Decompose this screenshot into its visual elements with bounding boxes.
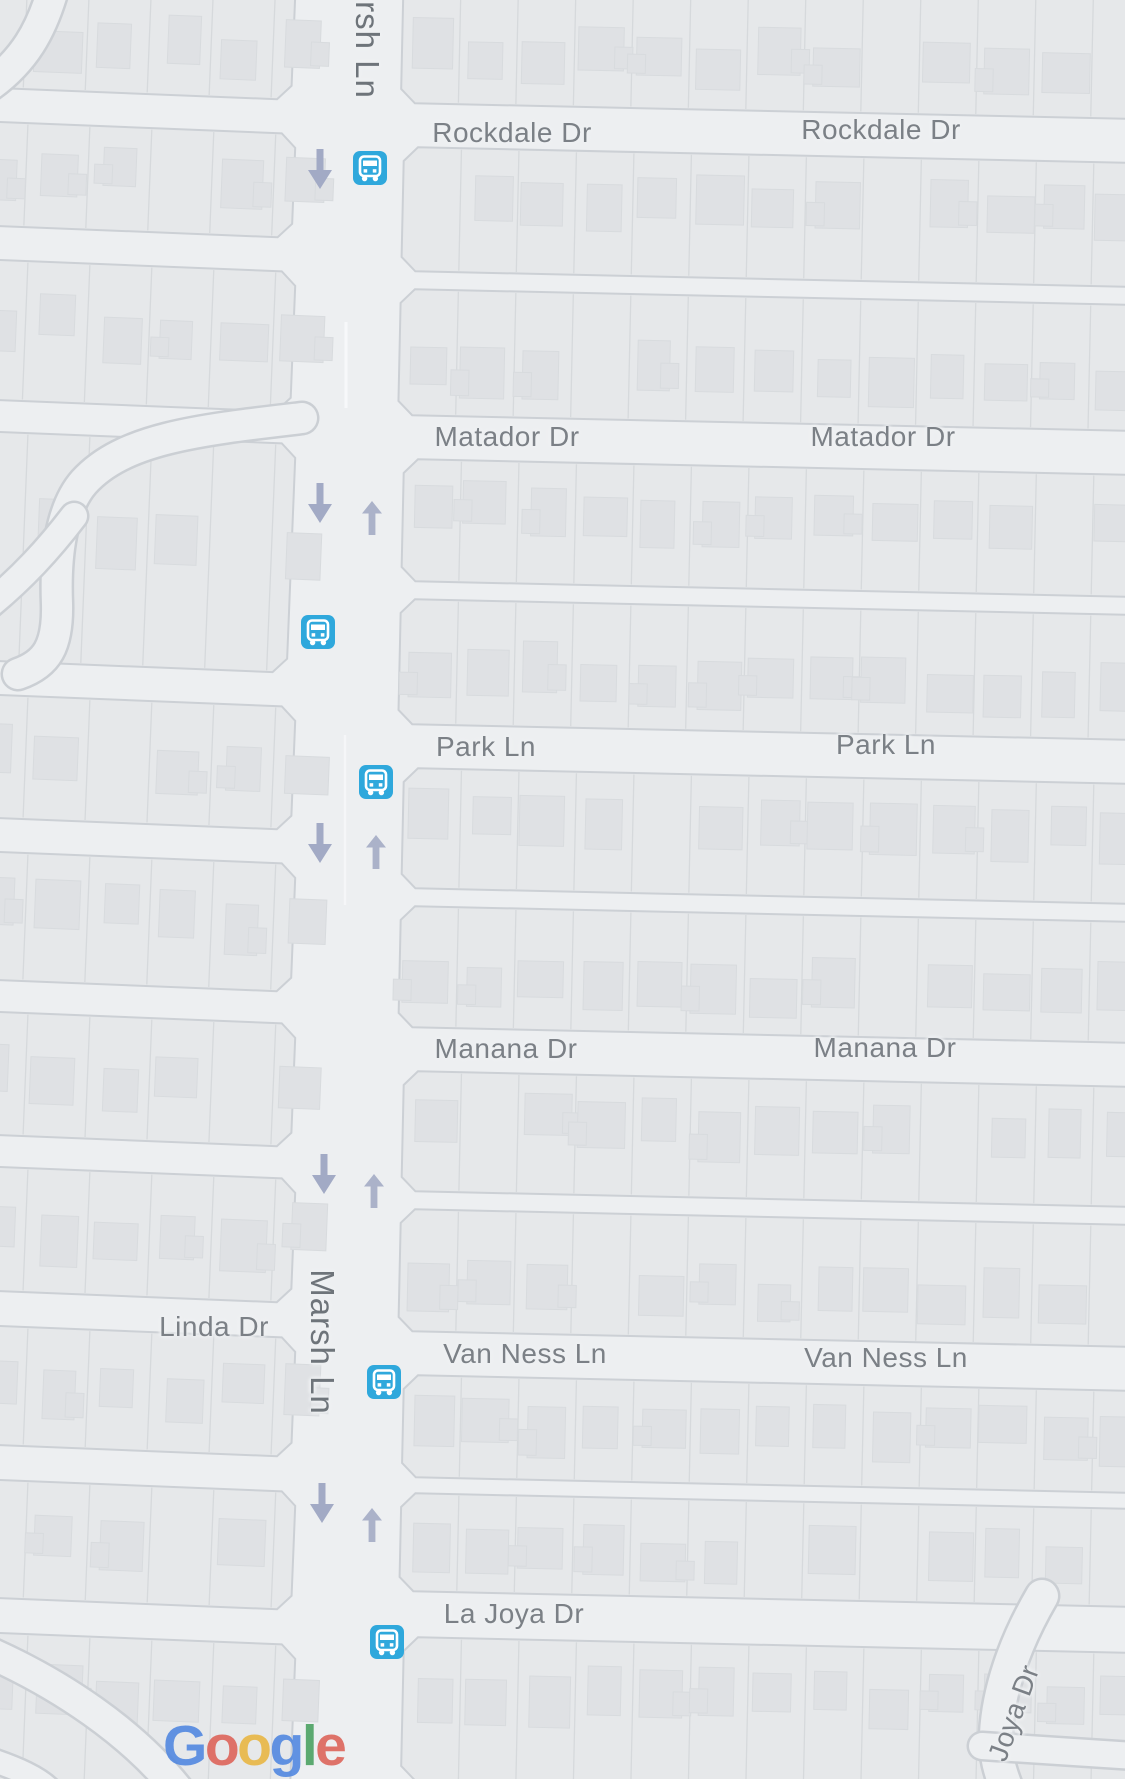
google-logo-letter: o — [237, 1714, 269, 1778]
street-label-marsh-ln-top: rsh Ln — [348, 1, 386, 99]
northbound-arrow-icon — [362, 1508, 382, 1547]
southbound-arrow-icon — [310, 1483, 334, 1528]
bus-icon — [359, 765, 393, 799]
google-logo-letter: e — [315, 1714, 344, 1778]
street-label-park-ln-east: Park Ln — [836, 729, 936, 761]
google-logo-letter: l — [302, 1714, 315, 1778]
street-label-van-ness-ln-west: Van Ness Ln — [443, 1338, 607, 1370]
bus-stop-icon[interactable] — [301, 615, 335, 649]
northbound-arrow-icon — [362, 501, 382, 540]
southbound-arrow-icon — [312, 1154, 336, 1199]
northbound-arrow-icon — [364, 1174, 384, 1213]
street-label-van-ness-ln-east: Van Ness Ln — [804, 1342, 968, 1374]
street-label-manana-dr-west: Manana Dr — [434, 1033, 577, 1065]
google-logo-letter: G — [163, 1714, 205, 1778]
bus-icon — [367, 1365, 401, 1399]
street-label-matador-dr-west: Matador Dr — [434, 421, 579, 453]
street-label-park-ln-west: Park Ln — [436, 731, 536, 763]
bus-stop-icon[interactable] — [370, 1625, 404, 1659]
street-label-linda-dr: Linda Dr — [159, 1311, 269, 1343]
map-canvas[interactable]: rsh Ln Rockdale Dr Rockdale Dr Matador D… — [0, 0, 1125, 1779]
street-label-rockdale-dr-west: Rockdale Dr — [432, 117, 592, 149]
google-logo: Google — [163, 1713, 344, 1779]
street-label-manana-dr-east: Manana Dr — [813, 1032, 956, 1064]
southbound-arrow-icon — [308, 149, 332, 194]
map-tiles — [0, 0, 1125, 1779]
bus-icon — [370, 1625, 404, 1659]
southbound-arrow-icon — [308, 483, 332, 528]
bus-stop-icon[interactable] — [367, 1365, 401, 1399]
bus-icon — [301, 615, 335, 649]
google-logo-letter: o — [205, 1714, 237, 1778]
southbound-arrow-icon — [308, 823, 332, 868]
street-label-rockdale-dr-east: Rockdale Dr — [801, 114, 961, 146]
bus-stop-icon[interactable] — [359, 765, 393, 799]
google-logo-letter: g — [270, 1714, 302, 1778]
street-label-marsh-ln: Marsh Ln — [303, 1269, 341, 1415]
northbound-arrow-icon — [366, 835, 386, 874]
bus-icon — [353, 151, 387, 185]
street-label-matador-dr-east: Matador Dr — [810, 421, 955, 453]
street-label-la-joya-dr: La Joya Dr — [444, 1598, 584, 1630]
bus-stop-icon[interactable] — [353, 151, 387, 185]
